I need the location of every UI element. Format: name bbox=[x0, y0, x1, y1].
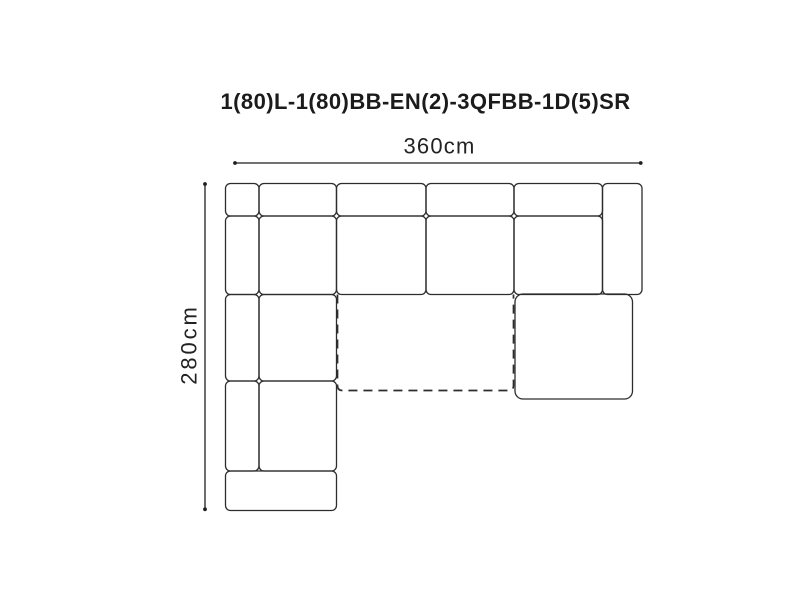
svg-text:360cm: 360cm bbox=[403, 134, 475, 159]
svg-text:280cm: 280cm bbox=[177, 304, 202, 385]
svg-text:1(80)L-1(80)BB-EN(2)-3QFBB-1D(: 1(80)L-1(80)BB-EN(2)-3QFBB-1D(5)SR bbox=[220, 89, 630, 114]
